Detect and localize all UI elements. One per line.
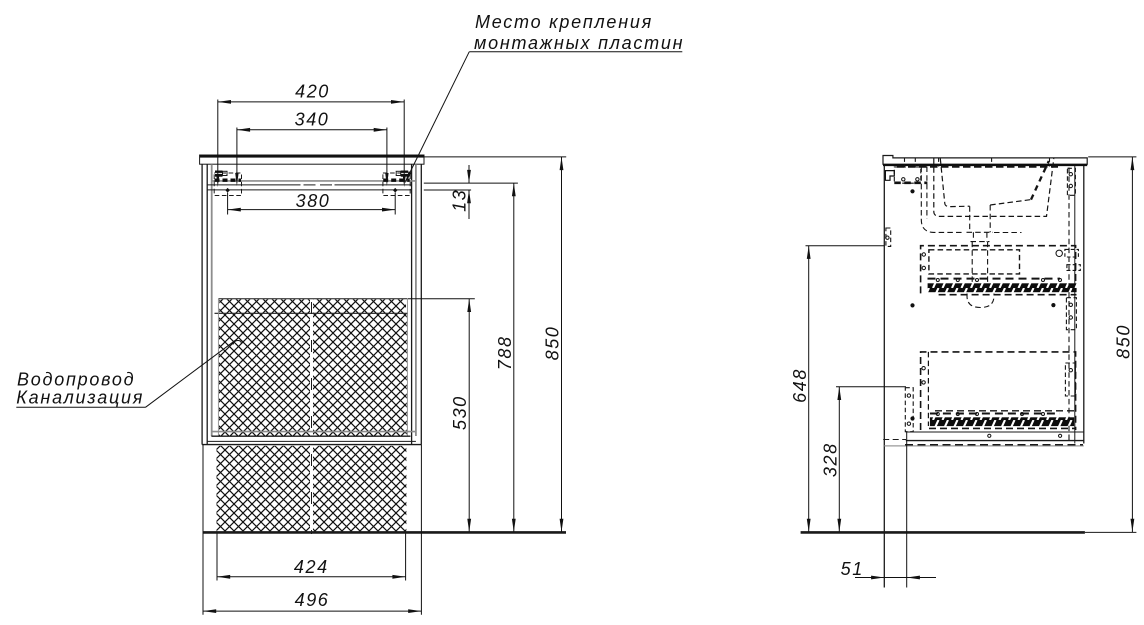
svg-text:51: 51	[841, 559, 864, 579]
svg-text:13: 13	[450, 189, 470, 212]
svg-text:380: 380	[296, 191, 331, 211]
svg-text:850: 850	[543, 326, 563, 361]
svg-text:424: 424	[294, 557, 329, 577]
svg-text:монтажных пластин: монтажных пластин	[474, 33, 684, 53]
svg-text:788: 788	[495, 335, 515, 370]
svg-text:850: 850	[1113, 324, 1133, 359]
svg-text:Канализация: Канализация	[16, 388, 144, 408]
svg-text:420: 420	[295, 82, 330, 102]
svg-text:328: 328	[820, 442, 840, 477]
svg-text:340: 340	[295, 110, 330, 130]
svg-text:Водопровод: Водопровод	[17, 369, 135, 389]
svg-text:530: 530	[450, 395, 470, 430]
svg-text:Место крепления: Место крепления	[475, 12, 653, 32]
svg-text:496: 496	[295, 590, 330, 610]
svg-text:648: 648	[790, 368, 810, 403]
